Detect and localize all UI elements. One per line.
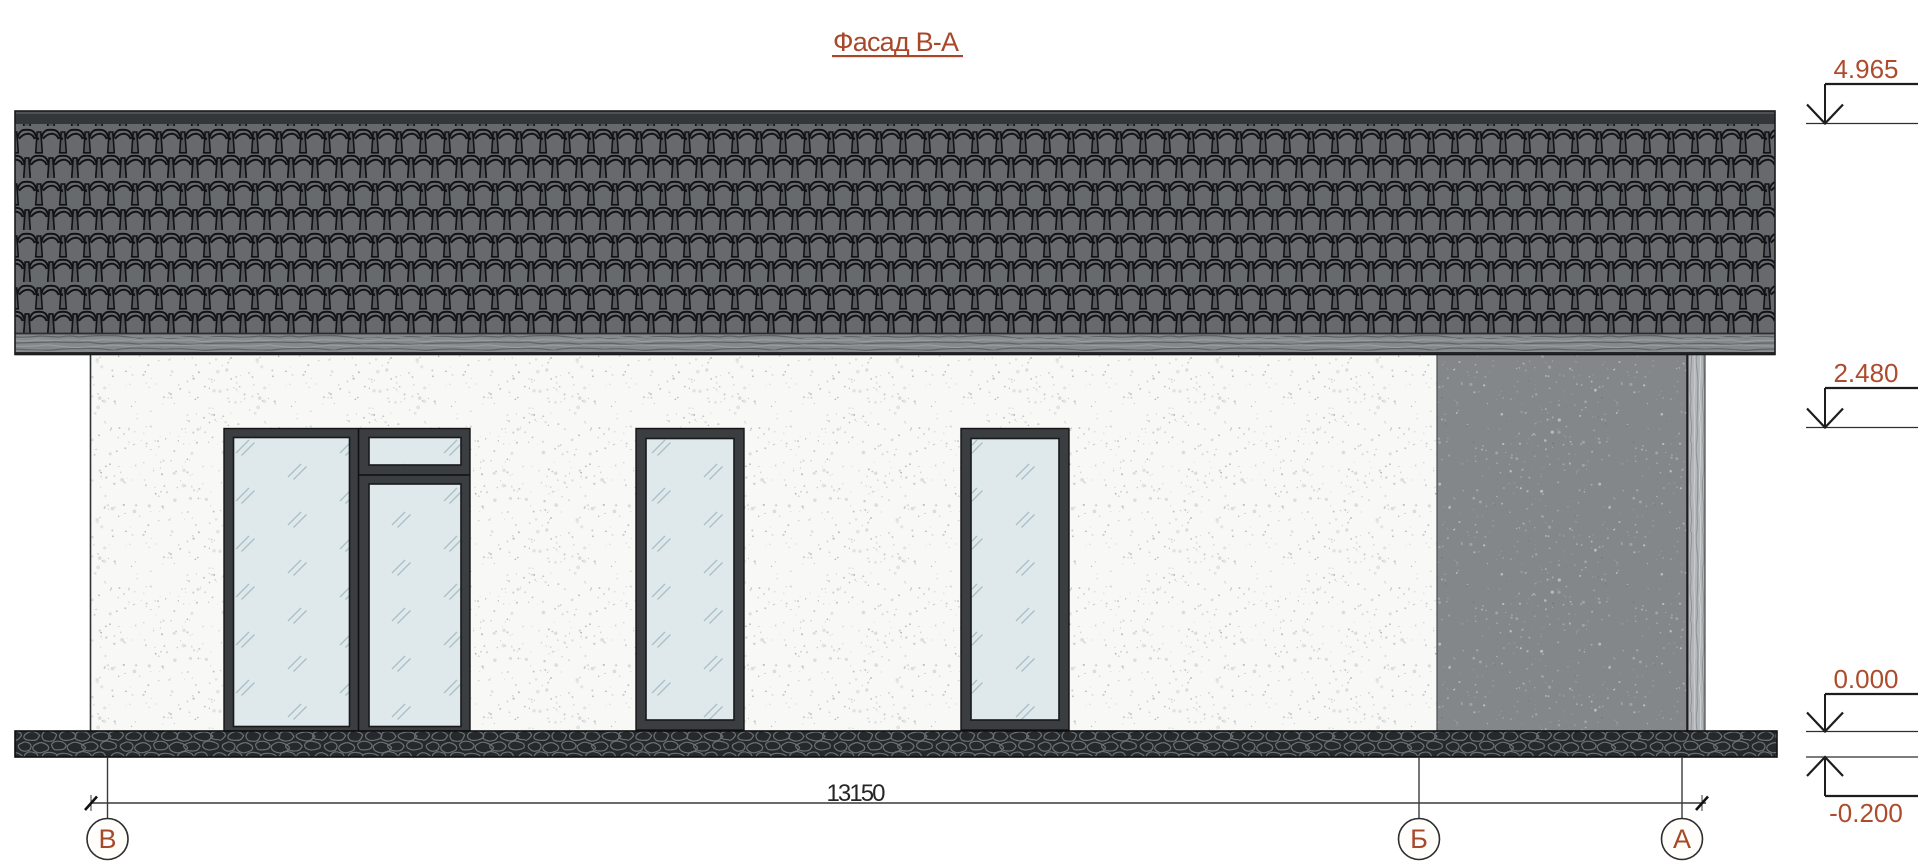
svg-text:2.480: 2.480: [1833, 358, 1898, 388]
svg-text:13150: 13150: [827, 780, 886, 807]
svg-text:-0.200: -0.200: [1829, 798, 1903, 828]
svg-text:В: В: [98, 824, 116, 854]
svg-text:Фасад В-А: Фасад В-А: [833, 27, 959, 57]
svg-text:Б: Б: [1410, 824, 1428, 854]
svg-text:0.000: 0.000: [1833, 664, 1898, 694]
svg-text:А: А: [1673, 824, 1691, 854]
svg-text:4.965: 4.965: [1833, 54, 1898, 84]
